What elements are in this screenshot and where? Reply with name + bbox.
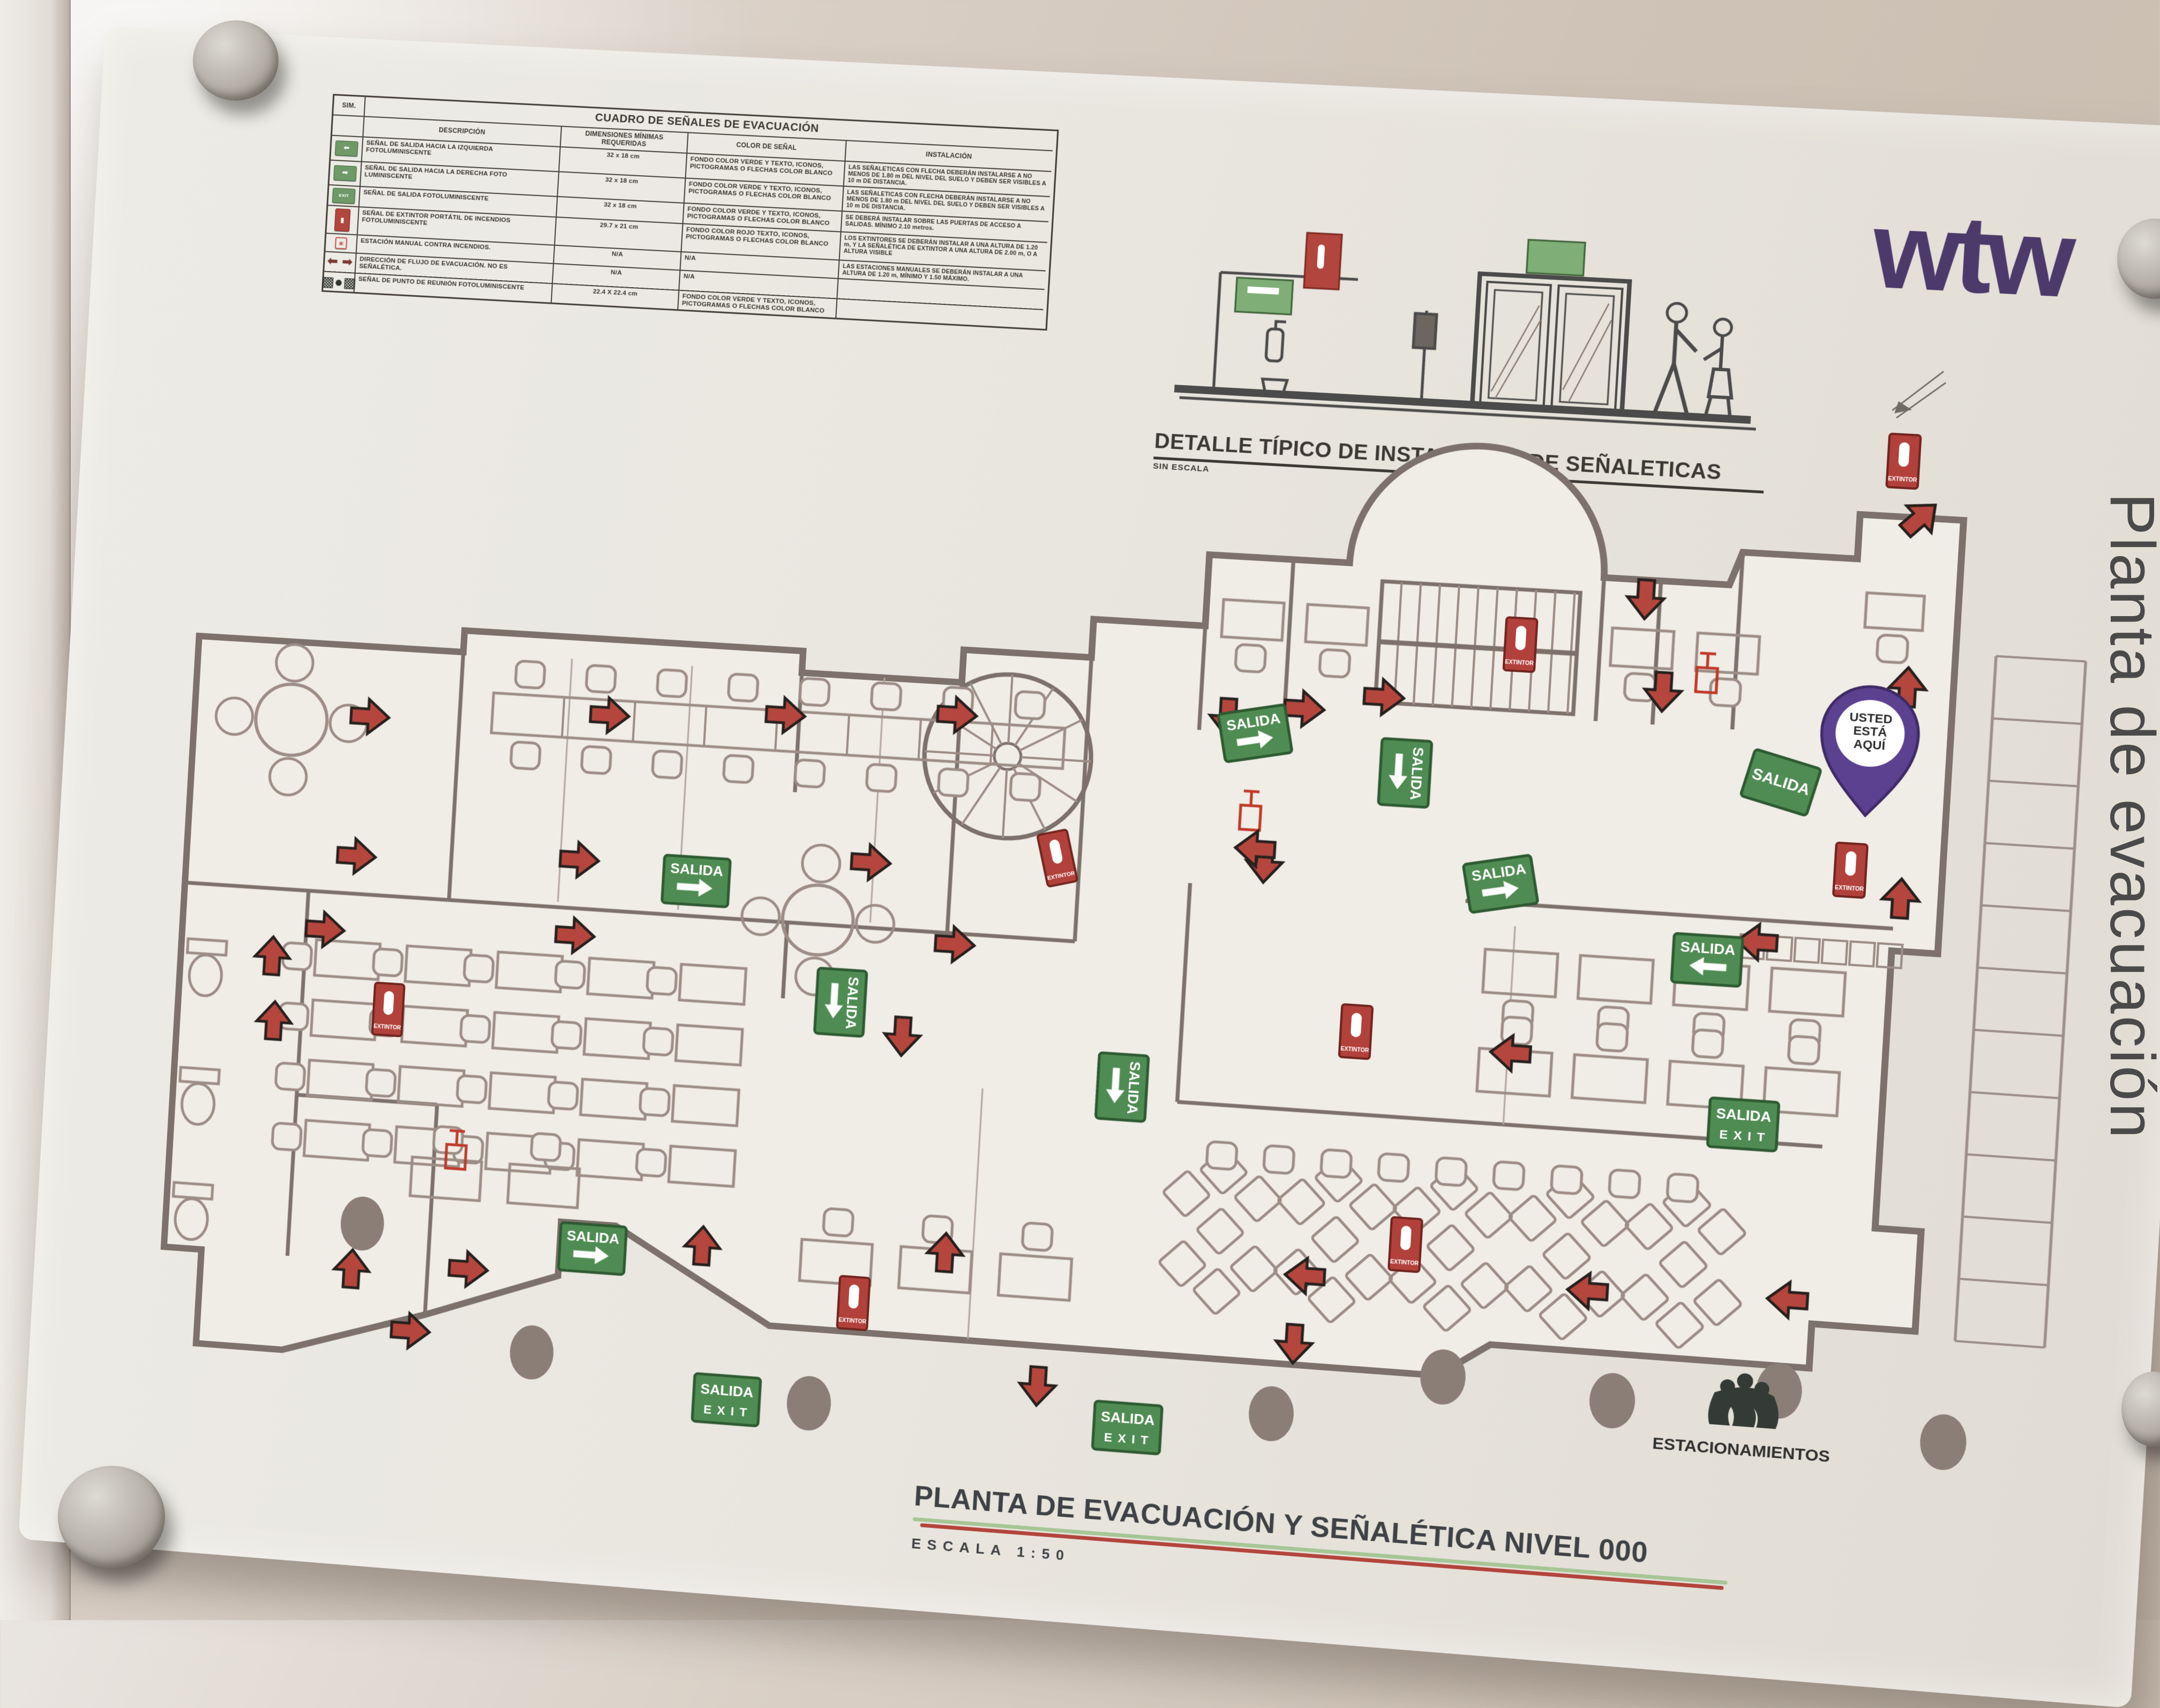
evacuation-floor-plan: SALIDASALIDASALIDASALIDAE X I TSALIDASAL… [117, 334, 2148, 1562]
parking-space-line [1962, 1217, 2052, 1223]
chair [373, 948, 402, 976]
parking-space-line [1955, 1341, 2044, 1347]
chair [1436, 1157, 1467, 1186]
salida-right-sign-icon: ➡ [333, 165, 357, 181]
chair [552, 1021, 582, 1049]
evacuation-flow-arrow [1018, 1366, 1056, 1406]
salida-sign: SALIDA [1671, 933, 1743, 986]
parking-space-line [1992, 718, 2082, 724]
parking-space-line [1977, 968, 2067, 973]
chair [640, 1088, 670, 1116]
structural-column [1918, 1413, 1968, 1472]
chair [1494, 1162, 1525, 1190]
chair [1022, 1223, 1053, 1251]
chair [1692, 1030, 1723, 1058]
salida-sign: SALIDA [814, 968, 867, 1037]
sim-cell: ▮ [326, 206, 359, 235]
chair [871, 683, 901, 710]
salida-sign: SALIDA [1218, 705, 1292, 762]
svg-text:ESTACIONAMIENTOS: ESTACIONAMIENTOS [1652, 1434, 1831, 1466]
parking-space-line [1966, 1155, 2056, 1161]
sim-cell: ▩●▩ [323, 272, 355, 292]
wtw-logo: wtw [1870, 195, 2072, 314]
parking-space-line [1985, 843, 2074, 849]
svg-text:SALIDA: SALIDA [1407, 746, 1427, 800]
salida-sign: SALIDA [1096, 1053, 1149, 1122]
mounting-standoff [193, 20, 279, 101]
chair [581, 746, 611, 774]
salida-left-sign-icon: ⬅ [335, 140, 358, 156]
chair [531, 1133, 561, 1161]
acrylic-panel: SIM.CUADRO DE SEÑALES DE EVACUACIÓNDESCR… [18, 26, 2160, 1708]
chair [464, 955, 493, 983]
sim-header: SIM. [333, 95, 366, 117]
salida-sign-icon: EXIT [332, 188, 356, 204]
parking-strip [1955, 656, 2086, 1347]
salida-sign: SALIDA [1378, 738, 1432, 807]
structural-column [785, 1375, 832, 1433]
chair [1378, 1153, 1409, 1182]
manual-station-icon: ▣ [335, 237, 347, 249]
parking-space-line [1974, 1030, 2063, 1036]
chair [1010, 773, 1040, 801]
parking-space-line [1989, 781, 2078, 786]
sim-cell: ⬅ ➡ [324, 252, 357, 274]
parking-space-line [1981, 905, 2071, 911]
extintor-sign-icon: ▮ [334, 208, 351, 232]
extintor-sign: EXTINTOR [1389, 1217, 1422, 1272]
extintor-sign: EXTINTOR [837, 1276, 870, 1330]
extintor-sign: EXTINTOR [1886, 433, 1921, 489]
parking-space-line [1970, 1092, 2059, 1098]
chair [1667, 1174, 1698, 1202]
chair [657, 669, 687, 697]
chair [515, 661, 545, 688]
salida-sign: SALIDAE X I T [1092, 1401, 1162, 1454]
chair [1609, 1170, 1640, 1198]
chair [1264, 1145, 1294, 1174]
chair [1206, 1141, 1237, 1170]
chair [1321, 1149, 1351, 1178]
wall-vertical-text: Planta de evacuación [2096, 493, 2160, 1140]
sim-cell: EXIT [328, 185, 361, 207]
extintor-sign: EXTINTOR [372, 983, 404, 1036]
chair [1551, 1165, 1582, 1194]
chair [460, 1015, 490, 1043]
chair [1877, 635, 1908, 663]
chair [728, 674, 758, 702]
chair [457, 1075, 486, 1103]
north-arrow-icon [1886, 357, 1959, 428]
salida-sign: SALIDA [558, 1223, 626, 1275]
chair [1319, 649, 1350, 677]
parking-space-line [1959, 1279, 2048, 1285]
chair [866, 764, 896, 792]
structural-column [1588, 1372, 1637, 1430]
parking-space-line [1996, 656, 2086, 662]
svg-text:SALIDA: SALIDA [842, 976, 862, 1030]
chair [363, 1129, 392, 1157]
chair [1015, 691, 1045, 719]
salida-sign: SALIDA [1463, 855, 1538, 912]
chair [723, 755, 753, 783]
structural-column [1247, 1384, 1295, 1443]
chair [1788, 1036, 1820, 1065]
sim-cell: ➡ [329, 161, 362, 187]
chair [586, 665, 616, 693]
svg-text:AQUÍ: AQUÍ [1853, 737, 1886, 753]
chair [647, 967, 677, 995]
sim-cell: ⬅ [331, 136, 363, 162]
evacuation-signal-table: SIM.CUADRO DE SEÑALES DE EVACUACIÓNDESCR… [321, 94, 1059, 331]
extintor-sign: EXTINTOR [1833, 843, 1867, 898]
svg-text:SALIDA: SALIDA [670, 860, 724, 880]
salida-sign: SALIDAE X I T [692, 1374, 761, 1426]
salida-sign: SALIDA [662, 855, 731, 907]
chair [548, 1082, 578, 1110]
chair [366, 1069, 395, 1097]
extintor-sign: EXTINTOR [1504, 617, 1537, 672]
extintor-sign: EXTINTOR [1339, 1004, 1373, 1059]
salida-sign: SALIDAE X I T [1707, 1098, 1779, 1151]
estacionamientos-label: ESTACIONAMIENTOS [1652, 1367, 1835, 1466]
chair [652, 751, 682, 778]
chair [555, 961, 585, 988]
photo-of-evacuation-sign: { "panel": { "signal_table": { "sim_head… [0, 0, 2160, 1620]
chair [272, 1123, 302, 1151]
structural-column [508, 1324, 555, 1381]
meeting-point-icon: ▩●▩ [321, 281, 357, 283]
flow-arrows-icon: ⬅ ➡ [327, 261, 353, 263]
chair [1235, 644, 1266, 672]
evacuation-sign-panel: SIM.CUADRO DE SEÑALES DE EVACUACIÓNDESCR… [18, 26, 2160, 1708]
chair [795, 760, 825, 788]
chair [823, 1208, 853, 1237]
outer-wall [159, 376, 1967, 1473]
chair [275, 1062, 305, 1090]
sim-cell: ▣ [325, 234, 357, 253]
chair [938, 768, 969, 796]
chair [1596, 1023, 1627, 1052]
chair [643, 1028, 673, 1055]
chair [511, 741, 541, 769]
chair [636, 1149, 666, 1177]
svg-text:SALIDA: SALIDA [1124, 1061, 1144, 1115]
chair [799, 678, 829, 706]
mounting-standoff [58, 1466, 165, 1568]
sim-header-spacer [332, 115, 365, 137]
